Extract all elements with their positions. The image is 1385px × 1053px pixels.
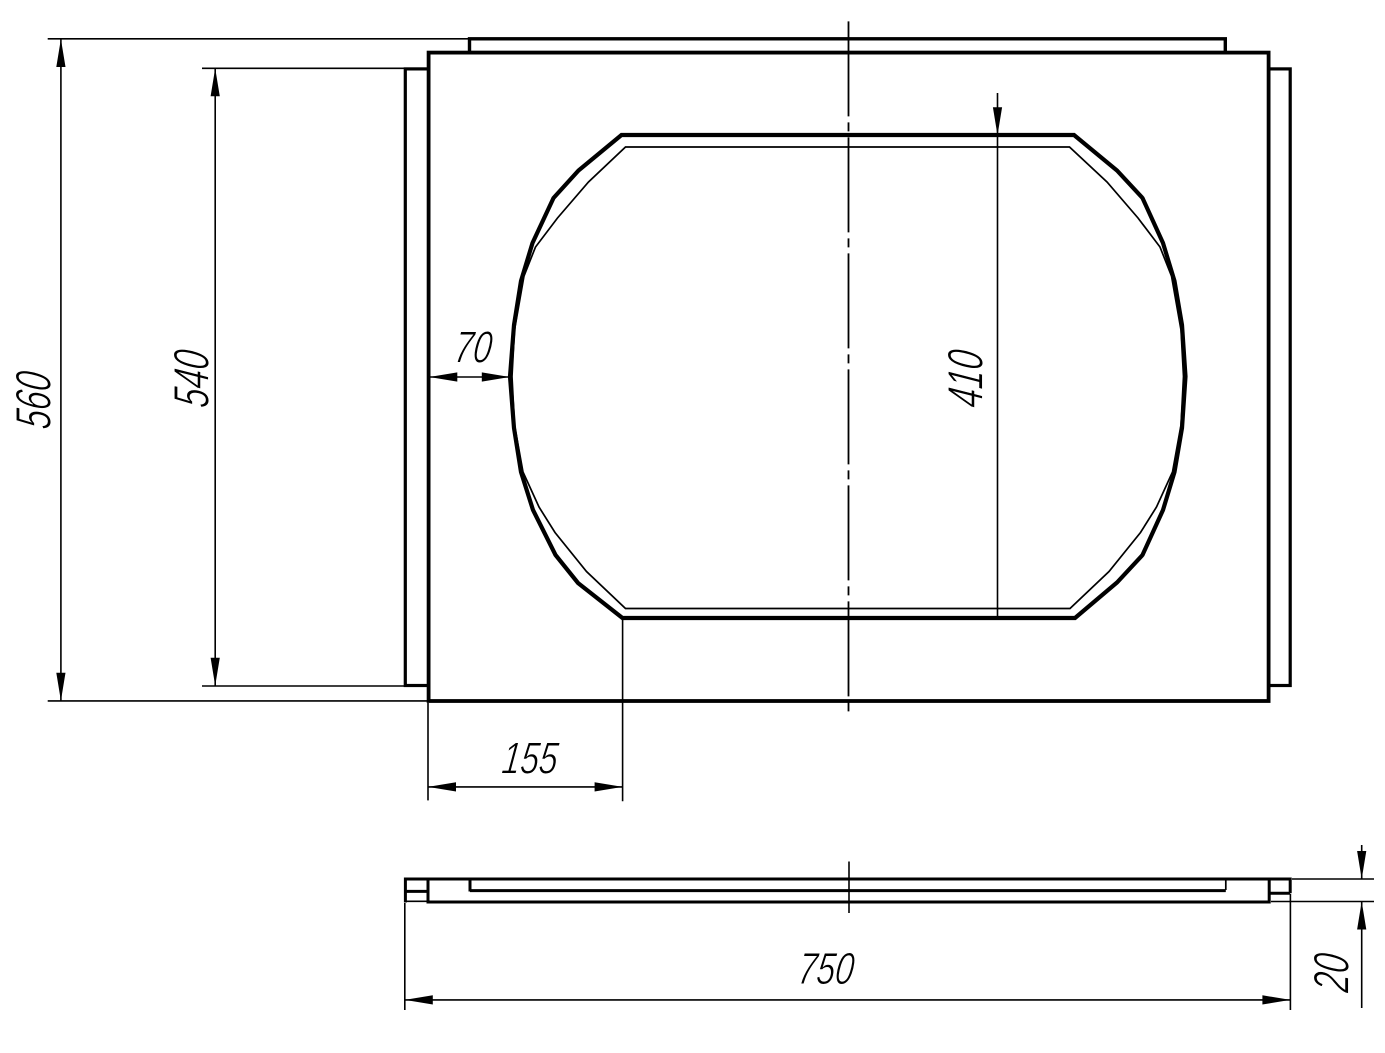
svg-text:540: 540 [164,346,220,410]
svg-text:750: 750 [795,943,857,994]
svg-text:410: 410 [938,346,994,410]
svg-text:560: 560 [6,368,62,432]
svg-text:70: 70 [452,322,495,373]
svg-text:155: 155 [499,732,562,783]
svg-text:20: 20 [1303,950,1359,996]
